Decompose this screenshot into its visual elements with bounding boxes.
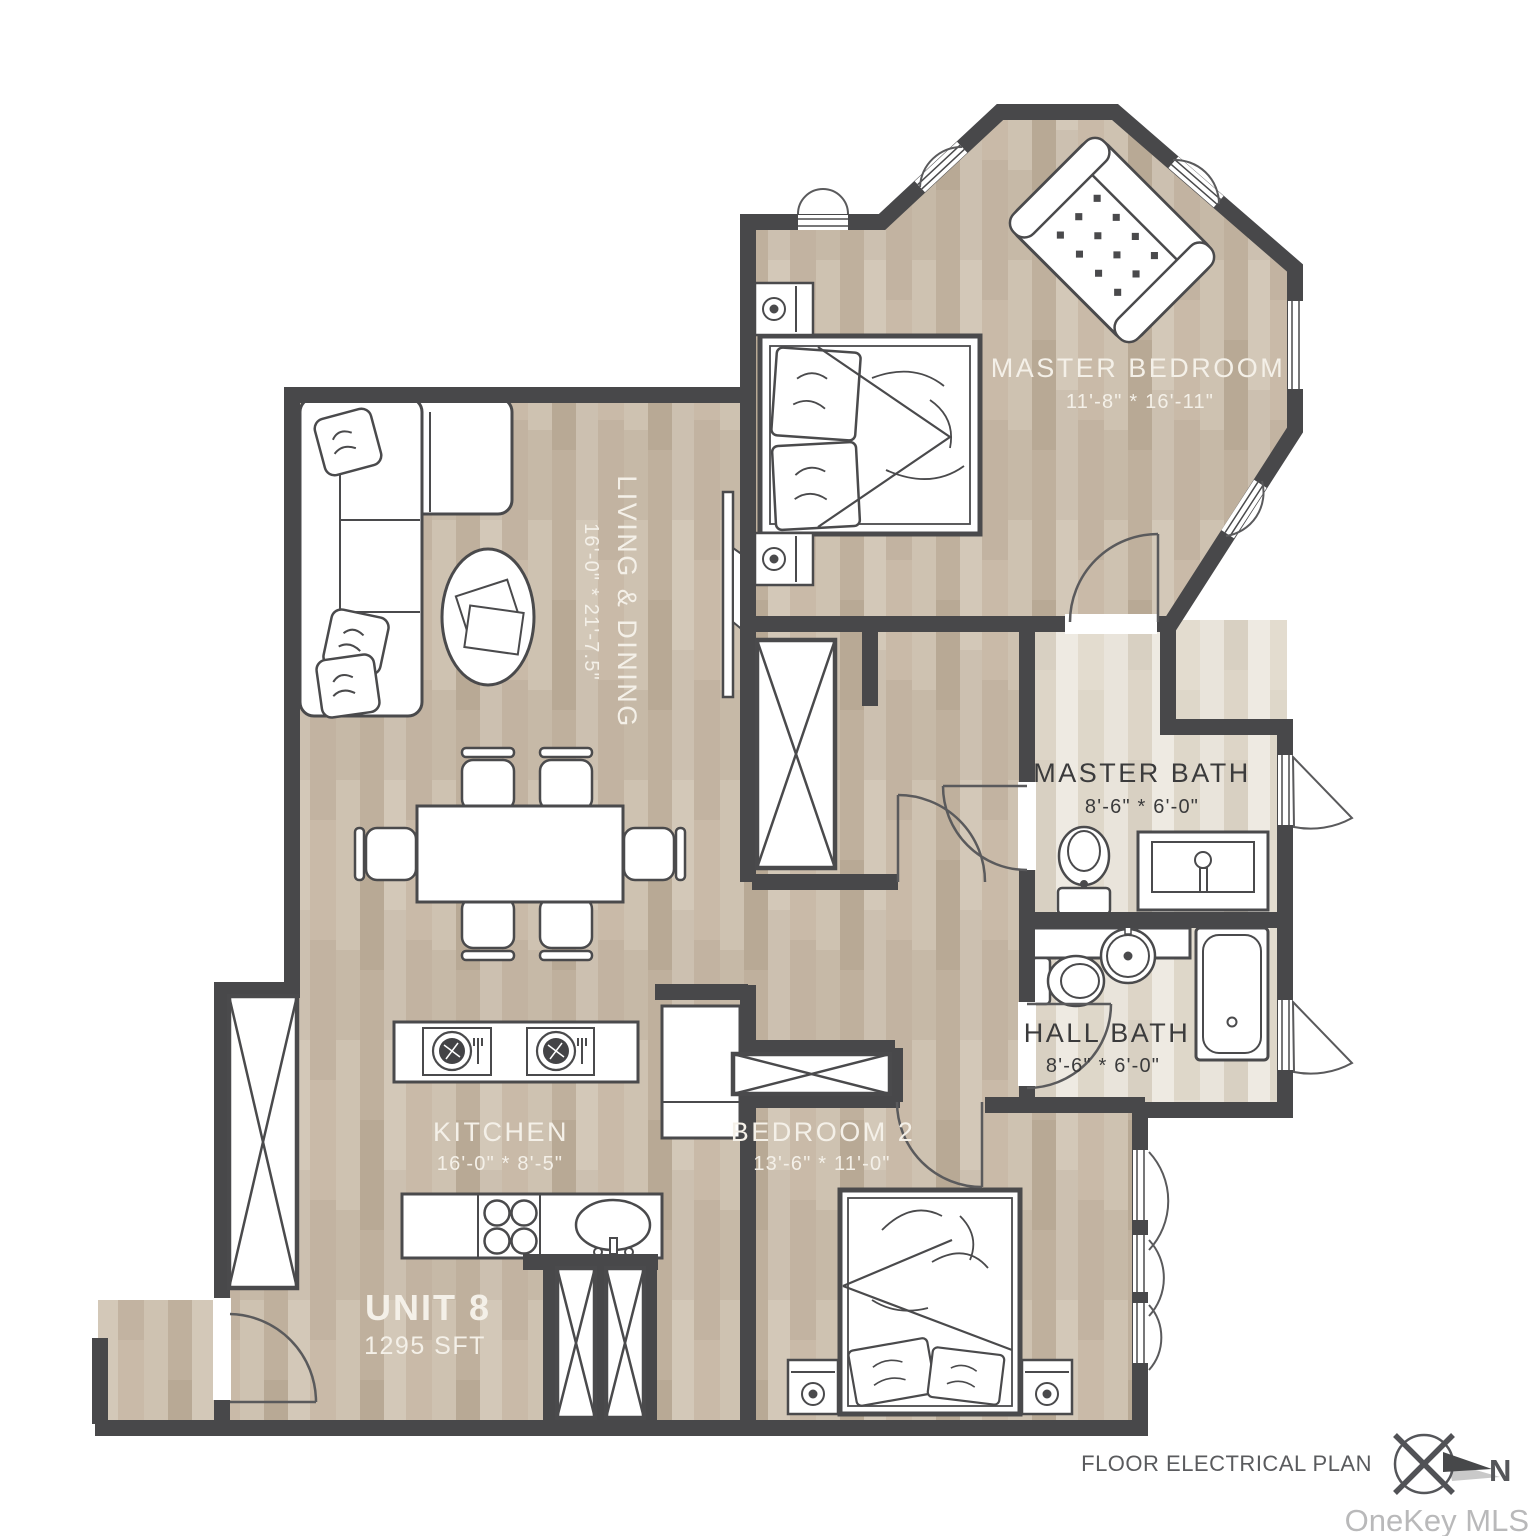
window	[1288, 301, 1303, 389]
hall-closet	[757, 640, 835, 868]
bedroom2-dims: 13'-6" * 11'-0"	[753, 1153, 890, 1175]
master-bed	[760, 336, 980, 534]
kitchen-label: KITCHEN	[433, 1117, 569, 1147]
compass-north-arrow	[1443, 1452, 1492, 1472]
master-bath-window	[1278, 755, 1352, 829]
hall-bath-toilet	[1032, 956, 1104, 1006]
nightstand	[1022, 1360, 1072, 1414]
bedroom2-closet	[733, 1054, 890, 1094]
plan-caption: FLOOR ELECTRICAL PLAN	[1081, 1451, 1372, 1476]
compass-north-label: N	[1489, 1453, 1511, 1488]
kitchen-island	[394, 1022, 638, 1082]
unit-area: 1295 SFT	[364, 1332, 486, 1360]
master-bath-dims: 8'-6" * 6'-0"	[1085, 796, 1199, 818]
master-bedroom-dims: 11'-8" * 16'-11"	[1066, 391, 1214, 413]
bathtub	[1196, 928, 1268, 1060]
entry-closet	[229, 996, 297, 1288]
hall-bath-window	[1278, 1000, 1352, 1074]
master-bath-label: MASTER BATH	[1033, 758, 1251, 788]
living-dining-dims: 16'-0" * 21'-7.5"	[580, 523, 602, 681]
entry-porch-floor	[98, 1300, 222, 1428]
nightstand	[755, 283, 813, 335]
master-bath-toilet	[1058, 827, 1110, 914]
pantry-closet	[557, 1268, 595, 1418]
dining-table	[417, 806, 623, 902]
floor-plan-page: MASTER BEDROOM 11'-8" * 16'-11" LIVING &…	[0, 0, 1536, 1536]
kitchen-dims: 16'-0" * 8'-5"	[437, 1153, 563, 1175]
nightstand	[755, 533, 813, 585]
hall-bath-dims: 8'-6" * 6'-0"	[1046, 1055, 1160, 1077]
master-bedroom-label: MASTER BEDROOM	[991, 353, 1286, 383]
master-bath-door-opening	[1018, 782, 1036, 870]
master-bedroom-door-opening	[1065, 614, 1157, 634]
bedroom2-windows	[1133, 1150, 1168, 1370]
unit-label: UNIT 8	[365, 1287, 491, 1328]
hall-bath-label: HALL BATH	[1024, 1018, 1191, 1048]
bedroom2-bed	[840, 1190, 1020, 1414]
nightstand	[788, 1360, 838, 1414]
pantry-closet	[606, 1268, 644, 1418]
compass-icon	[1395, 1435, 1500, 1493]
sofa-pillow	[315, 653, 381, 719]
coffee-table	[442, 549, 534, 685]
floor-plan-drawing: MASTER BEDROOM 11'-8" * 16'-11" LIVING &…	[0, 0, 1536, 1536]
watermark: OneKey MLS	[1345, 1503, 1529, 1536]
entry-door-opening	[213, 1298, 231, 1400]
window-swing-arc	[1149, 1152, 1168, 1370]
window	[798, 189, 848, 230]
bedroom2-label: BEDROOM 2	[731, 1117, 916, 1147]
master-bath-vanity	[1138, 832, 1268, 910]
footer: FLOOR ELECTRICAL PLAN N OneKey MLS	[1081, 1435, 1529, 1536]
living-dining-label: LIVING & DINING	[612, 475, 642, 729]
